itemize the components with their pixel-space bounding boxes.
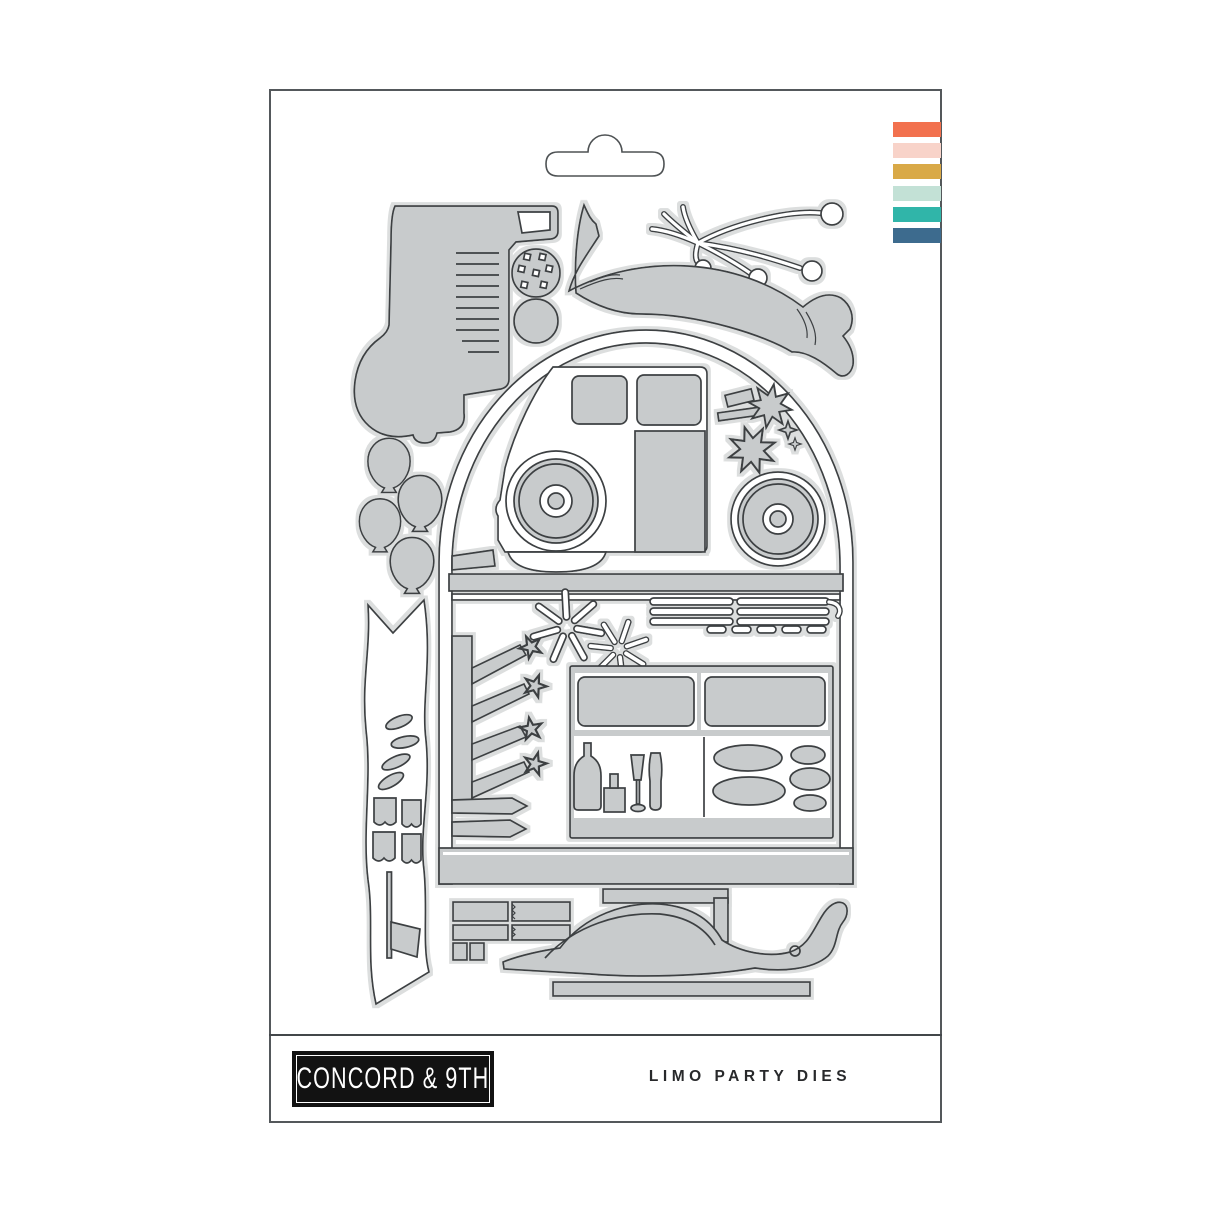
branding-divider bbox=[269, 1034, 942, 1036]
brand-logo-text: CONCORD & 9TH bbox=[297, 1062, 490, 1096]
product-title: LIMO PARTY DIES bbox=[620, 1068, 880, 1086]
brand-logo: CONCORD & 9TH bbox=[292, 1051, 494, 1107]
product-image: CONCORD & 9TH LIMO PARTY DIES bbox=[0, 0, 1214, 1214]
packaging-card bbox=[269, 89, 942, 1123]
brand-logo-frame: CONCORD & 9TH bbox=[296, 1055, 490, 1103]
